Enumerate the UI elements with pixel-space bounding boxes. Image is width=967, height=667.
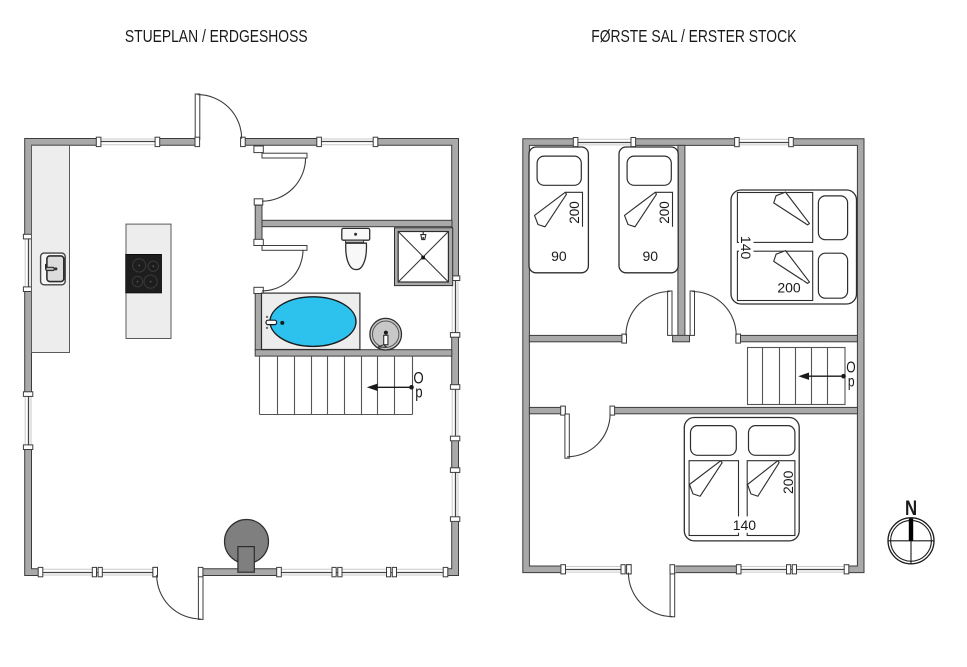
svg-text:90: 90 (643, 248, 659, 264)
svg-text:STUEPLAN / ERDGESHOSS: STUEPLAN / ERDGESHOSS (125, 28, 308, 47)
svg-text:200: 200 (780, 470, 796, 494)
svg-text:140: 140 (738, 236, 754, 260)
svg-text:p: p (415, 383, 422, 402)
svg-text:200: 200 (777, 280, 801, 296)
svg-text:200: 200 (567, 201, 582, 224)
svg-text:90: 90 (551, 248, 567, 264)
svg-text:140: 140 (733, 517, 757, 533)
svg-text:FØRSTE SAL / ERSTER STOCK: FØRSTE SAL / ERSTER STOCK (591, 28, 796, 47)
svg-text:200: 200 (657, 201, 672, 224)
svg-text:p: p (848, 372, 855, 390)
